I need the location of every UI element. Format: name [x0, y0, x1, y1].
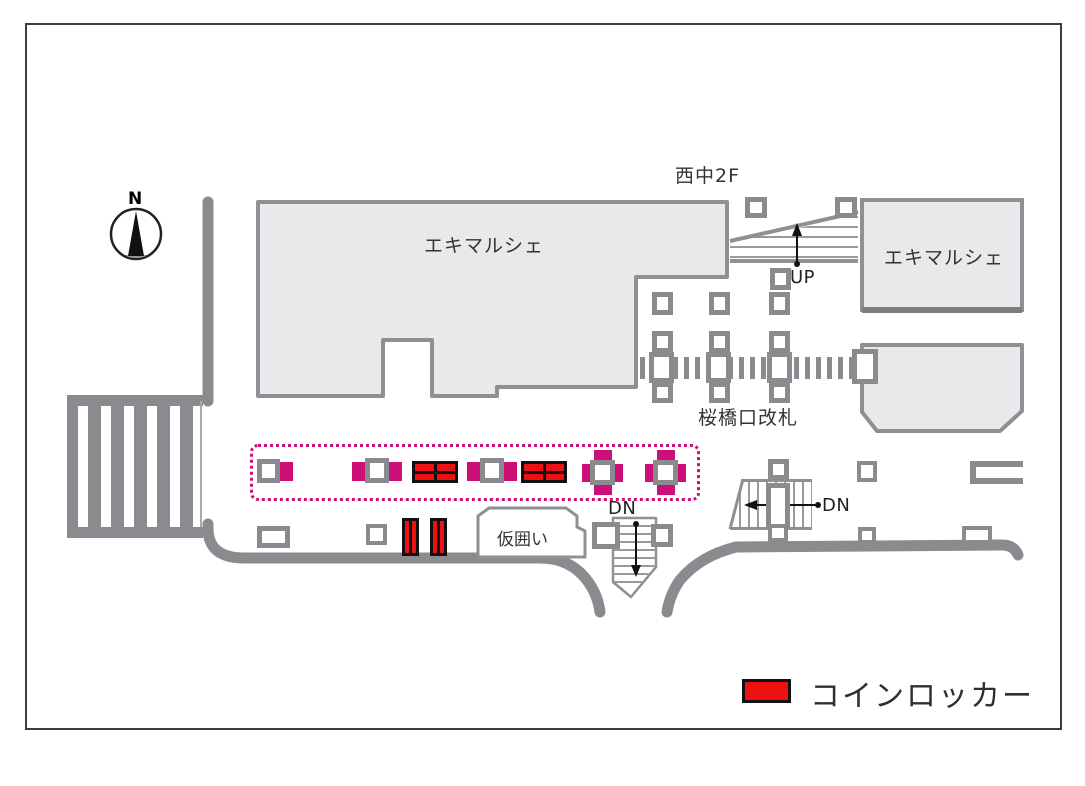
map-border-frame	[25, 23, 1062, 730]
station-map: N 西中2F エキマルシェ エキマルシェ UP 桜橋口改札 DN DN 仮囲い …	[0, 0, 1085, 786]
